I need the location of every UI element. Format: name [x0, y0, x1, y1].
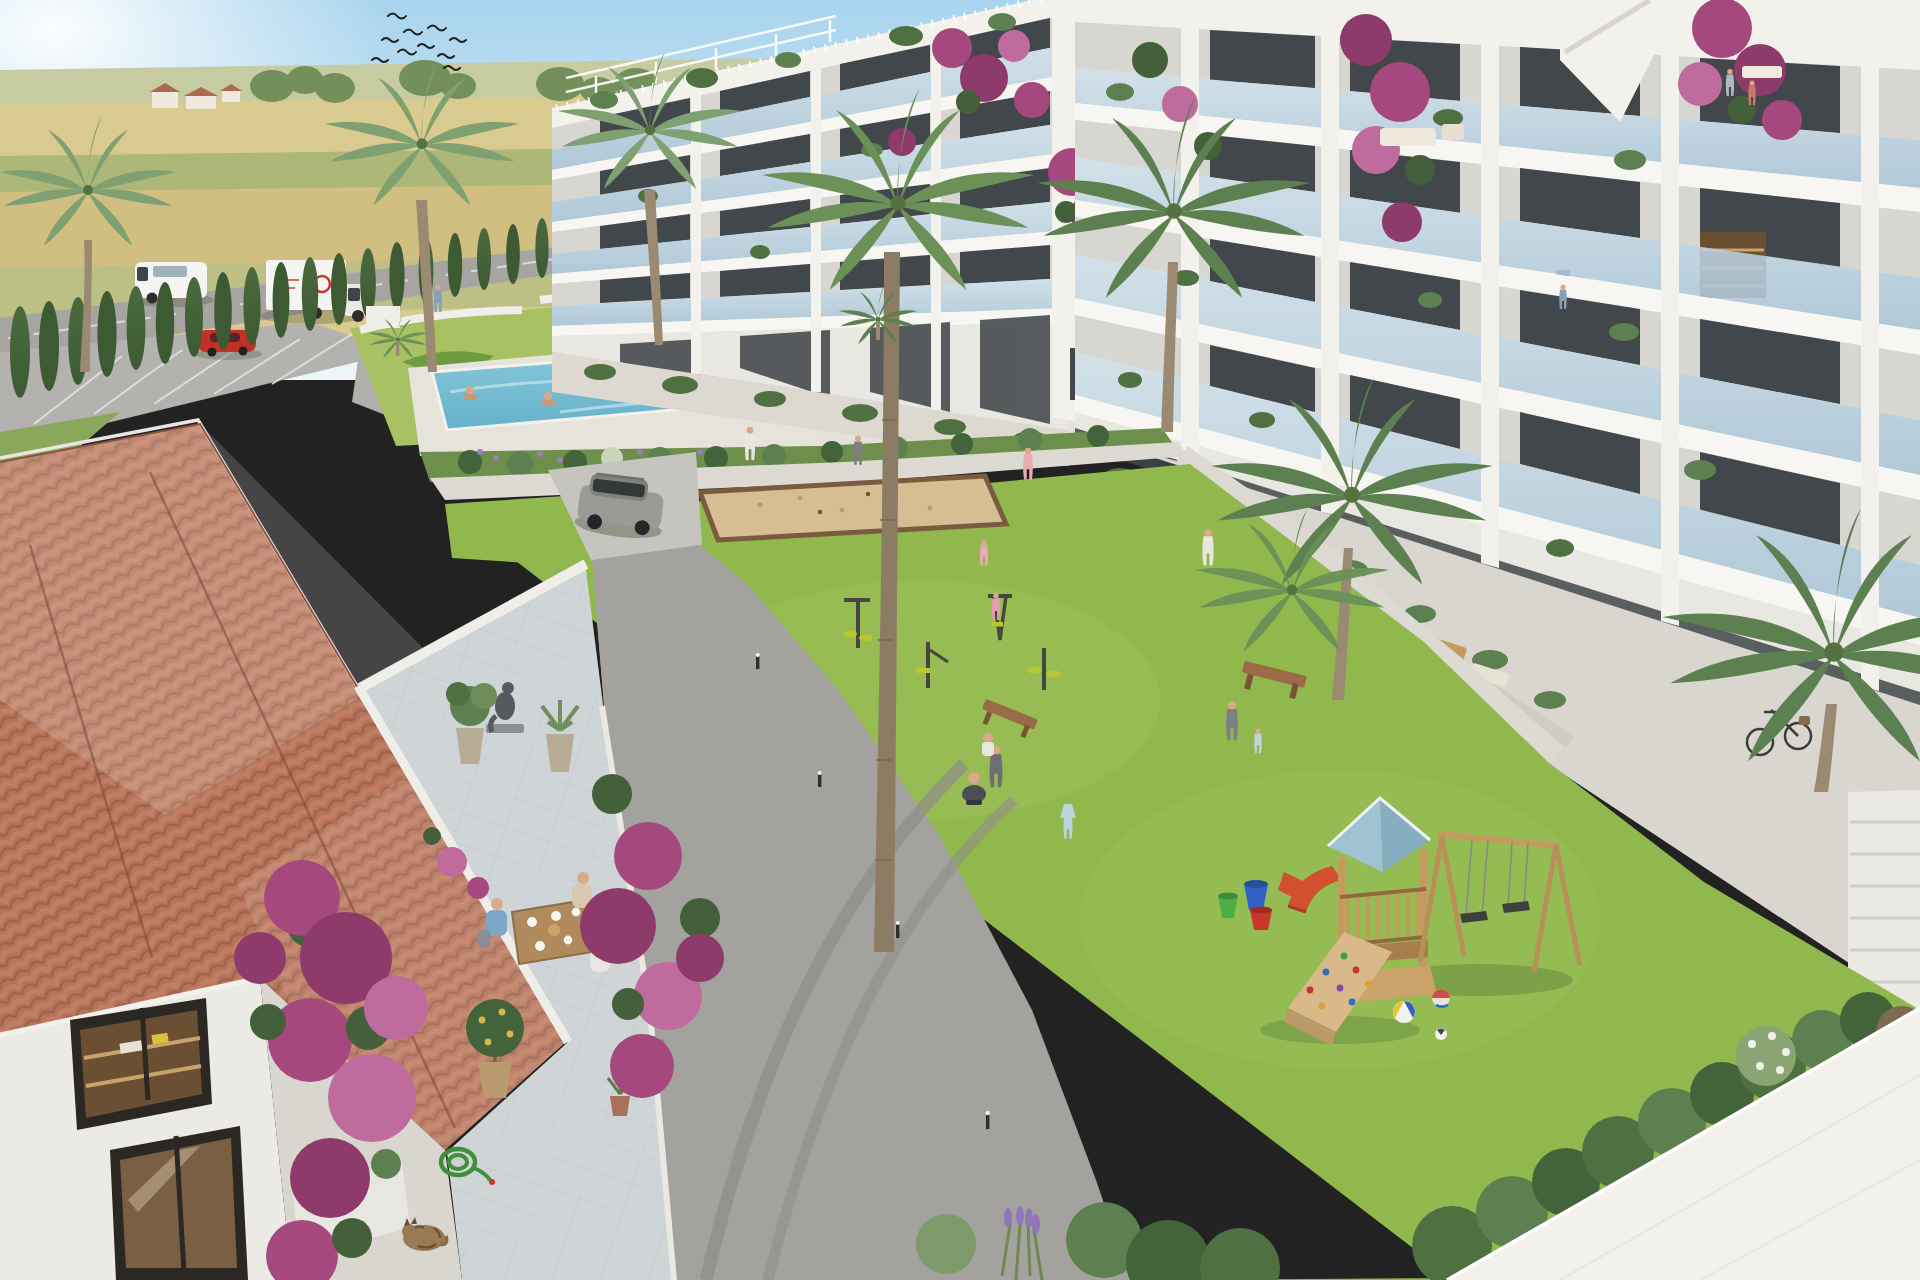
villa-door — [110, 1126, 248, 1280]
white-flower-bush — [1736, 1026, 1796, 1086]
rendered-scene: Sunny aerial render of a white Mediterra… — [0, 0, 1920, 1280]
aerial-render-canvas — [0, 0, 1920, 1280]
